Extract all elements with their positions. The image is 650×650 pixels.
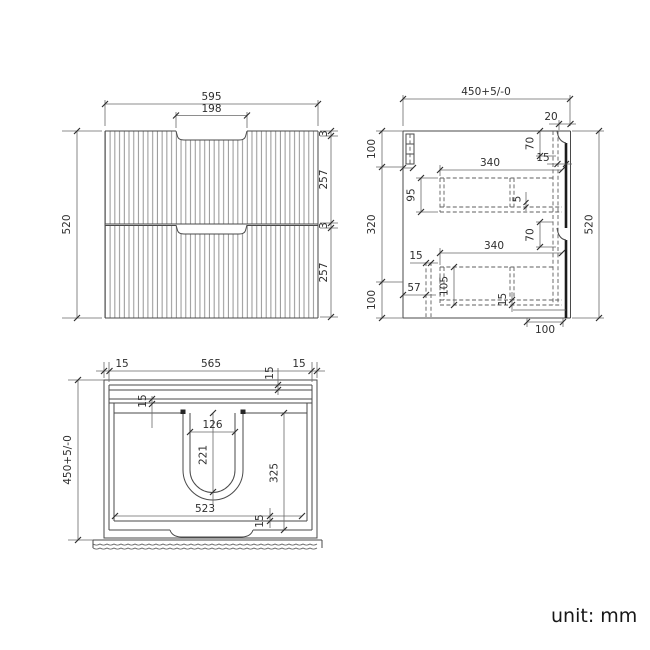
dim-plan-back-gap-right: 15 <box>264 366 276 379</box>
drawer1-fluted-front <box>105 131 318 224</box>
plan-view-dimensions: 15 565 15 15 15 450+5/-0 126 221 325 523… <box>62 358 325 543</box>
dim-plan-front-span: 325 <box>269 463 281 483</box>
drawer2-handle-recess-fill <box>176 225 247 234</box>
drawer2-fluted-front <box>105 225 318 318</box>
side-section-view: 450+5/-0 20 100 320 100 520 70 15 340 95… <box>366 86 604 336</box>
dim-side-rail15: 15 <box>409 250 422 262</box>
dim-plan-inner-width: 565 <box>201 358 221 370</box>
side-view-dimensions: 450+5/-0 20 100 320 100 520 70 15 340 95… <box>366 86 604 336</box>
front-view-drawers <box>105 131 318 318</box>
plan-handle-recess <box>170 530 253 537</box>
dim-side-front-thickness: 20 <box>544 111 557 123</box>
drawer1-handle-recess-fill <box>176 131 247 140</box>
dim-side-recess-top: 70 <box>525 137 537 150</box>
dim-side-overall-height: 520 <box>584 214 596 234</box>
front-elevation-view: 595 198 520 3 257 3 257 <box>61 91 338 321</box>
technical-drawing-page: 595 198 520 3 257 3 257 <box>0 0 650 650</box>
dim-side-bottom15: 15 <box>497 293 509 306</box>
dim-plan-left-wall: 15 <box>115 358 128 370</box>
dim-plan-overall-depth: 450+5/-0 <box>62 435 74 485</box>
dim-side-drawer2-height: 105 <box>439 276 451 296</box>
dim-plan-inner-front-width: 523 <box>195 503 215 515</box>
dim-side-bottom-offset: 100 <box>366 290 378 310</box>
dim-plan-front-wall: 15 <box>254 514 266 527</box>
dim-plan-cutout-depth: 221 <box>198 445 210 465</box>
dim-side-overall-depth: 450+5/-0 <box>461 86 511 98</box>
dim-side-drawer1-height: 95 <box>406 188 418 201</box>
dim-side-back-offset: 57 <box>407 282 420 294</box>
dim-side-clearance5: 5 <box>512 196 524 203</box>
unit-label: unit: mm <box>551 605 637 627</box>
plan-view: 15 565 15 15 15 450+5/-0 126 221 325 523… <box>62 358 325 549</box>
dim-front-overall-height: 520 <box>61 214 73 234</box>
dim-side-bottom-offset100: 100 <box>535 324 555 336</box>
back-rail-hidden <box>426 262 431 317</box>
drawer1-box-hidden <box>440 178 562 212</box>
flute-wave-1 <box>93 544 317 545</box>
cutout-corner-mark-right <box>241 410 246 415</box>
dim-side-recess-mid: 70 <box>525 228 537 241</box>
dim-side-drawer2-depth: 340 <box>484 240 504 252</box>
plan-front-rails <box>109 521 312 530</box>
vanity-cabinet-drawing: 595 198 520 3 257 3 257 <box>0 0 650 650</box>
dim-side-top-offset: 100 <box>366 139 378 159</box>
dim-front-mid-gap: 3 <box>318 222 330 229</box>
flute-wave-2 <box>93 548 317 549</box>
dim-side-front15: 15 <box>536 152 549 164</box>
dim-front-drawer2-height: 257 <box>318 262 330 282</box>
dim-plan-right-wall: 15 <box>292 358 305 370</box>
dim-front-drawer1-height: 257 <box>318 169 330 189</box>
drawer-front-hidden-lines <box>553 131 558 305</box>
dim-front-overall-width: 595 <box>201 91 221 103</box>
dim-front-top-gap: 3 <box>318 130 330 137</box>
dim-front-handle-width: 198 <box>201 103 221 115</box>
cutout-corner-mark-left <box>181 410 186 415</box>
dim-plan-cutout-width: 126 <box>202 419 222 431</box>
dim-side-mid-span: 320 <box>366 214 378 234</box>
dim-side-drawer1-depth: 340 <box>480 157 500 169</box>
dim-plan-back-gap-left: 15 <box>137 394 149 407</box>
